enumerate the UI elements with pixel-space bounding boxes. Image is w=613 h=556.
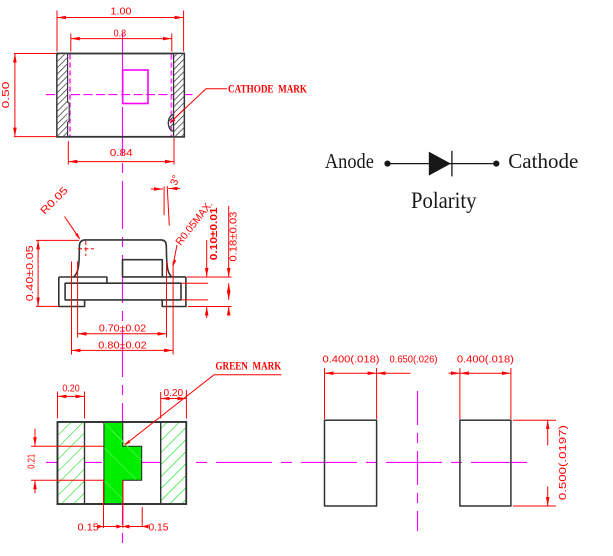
svg-text:Cathode: Cathode — [508, 149, 578, 173]
svg-text:0.84: 0.84 — [110, 147, 133, 159]
svg-text:0.500(.0197): 0.500(.0197) — [557, 425, 569, 500]
svg-text:0.15: 0.15 — [148, 522, 168, 534]
svg-text:0.20: 0.20 — [163, 387, 183, 399]
svg-text:0.40±0.05: 0.40±0.05 — [24, 245, 36, 301]
svg-text:0.15: 0.15 — [78, 522, 99, 534]
svg-text:1.00: 1.00 — [111, 5, 132, 17]
svg-text:0.650(.026): 0.650(.026) — [390, 354, 438, 366]
svg-text:GREEN MARK: GREEN MARK — [215, 358, 282, 372]
svg-text:0.8: 0.8 — [114, 28, 127, 40]
svg-text:0.80±0.02: 0.80±0.02 — [98, 339, 147, 351]
svg-text:R0.05: R0.05 — [38, 184, 71, 217]
svg-text:CATHODE MARK: CATHODE MARK — [228, 82, 308, 96]
svg-text:Anode: Anode — [325, 149, 374, 173]
svg-text:0.400(.018): 0.400(.018) — [323, 354, 380, 366]
svg-text:0.10±0.01: 0.10±0.01 — [208, 207, 220, 260]
svg-text:0.50: 0.50 — [0, 81, 12, 108]
svg-text:3°: 3° — [168, 173, 183, 187]
svg-text:0.70±0.02: 0.70±0.02 — [99, 323, 146, 335]
svg-text:0.20: 0.20 — [62, 382, 79, 394]
svg-text:0.400(.018): 0.400(.018) — [457, 354, 514, 366]
svg-text:0.18±0.03: 0.18±0.03 — [228, 211, 240, 261]
svg-text:Polarity: Polarity — [411, 188, 477, 213]
svg-text:0.21: 0.21 — [25, 454, 37, 469]
